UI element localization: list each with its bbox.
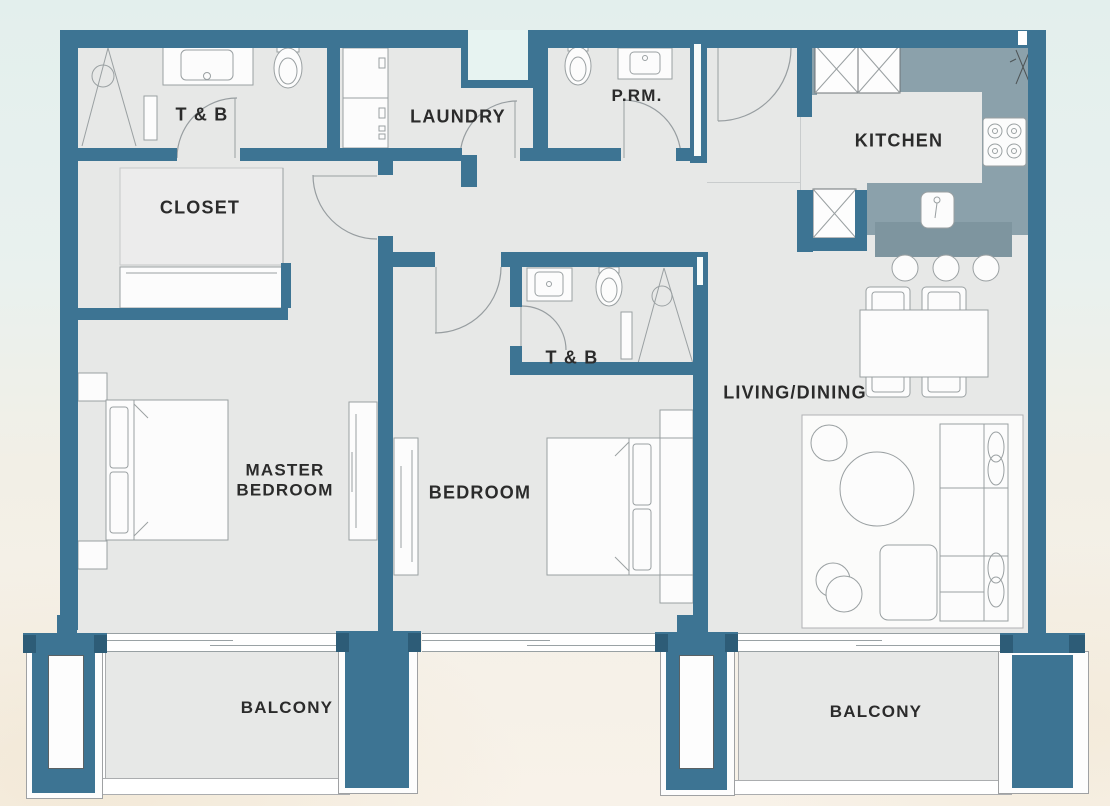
room-label-balcony-left: BALCONY (241, 698, 333, 718)
wall (533, 30, 548, 161)
wall (60, 30, 466, 48)
floor-plan: T & B LAUNDRY P.RM. KITCHEN CLOSET T & B… (0, 0, 1110, 806)
bath2-toilet (596, 267, 622, 306)
coffee-table (840, 452, 914, 526)
slider-panel-line (738, 640, 882, 641)
room-label-laundry: LAUNDRY (410, 107, 506, 128)
kitchen-sink (921, 192, 954, 228)
kitchen-cabinet-x-box (815, 45, 858, 93)
dining-set (860, 287, 988, 397)
bar-stools (892, 255, 999, 281)
slider-panel-line (527, 645, 655, 646)
wall (693, 252, 708, 635)
wall (281, 263, 291, 308)
door-bedroom (435, 267, 501, 333)
living-balcony-door (738, 633, 1000, 652)
room-label-closet: CLOSET (160, 198, 240, 219)
column-notch (336, 633, 349, 652)
wall-shaft (697, 257, 703, 285)
wall (797, 30, 812, 117)
wall (60, 30, 78, 630)
wall (855, 190, 867, 238)
bedroom-window (422, 633, 655, 652)
wall (501, 252, 708, 267)
door-entry (718, 48, 791, 121)
wall (378, 148, 393, 175)
room-label-kitchen: KITCHEN (855, 131, 943, 152)
room-label-powder-room: P.RM. (611, 86, 662, 106)
wall (461, 80, 535, 88)
column-notch (725, 634, 738, 652)
side-table (811, 425, 847, 461)
bedroom-bed (547, 438, 660, 575)
wall (510, 362, 708, 375)
master-bath-vanity-sink (163, 45, 253, 85)
master-bath-toilet (274, 45, 302, 88)
stove-cooktop (983, 118, 1026, 166)
door-bath2 (521, 306, 566, 350)
bath2-sink (527, 268, 572, 301)
wall (378, 267, 393, 635)
slider-panel-line (105, 640, 233, 641)
master-bath-shower (82, 48, 136, 146)
lounge-chair (880, 545, 937, 620)
kitchen-cabinet-x-box (813, 189, 856, 238)
nightstand (78, 373, 107, 401)
ac-ledge (679, 655, 714, 769)
room-label-living-dining: LIVING/DINING (723, 383, 867, 404)
column-notch (408, 633, 421, 652)
shower-glass-panel (144, 96, 157, 140)
wall-shaft (694, 44, 701, 156)
column-notch (1000, 635, 1013, 653)
ac-ledge (48, 655, 84, 769)
wall (797, 238, 867, 251)
wall (60, 148, 177, 161)
furniture-layer (0, 0, 1110, 806)
wall (60, 308, 288, 320)
wall (378, 252, 435, 267)
column-notch (655, 634, 668, 652)
wall (1028, 30, 1046, 642)
nightstand (78, 541, 107, 569)
master-balcony-door (105, 633, 338, 652)
column-notch (1069, 635, 1085, 653)
wall (327, 42, 340, 153)
column-notch (23, 635, 36, 653)
door-powder-room (623, 100, 681, 158)
wall (510, 267, 522, 307)
door-closet (313, 175, 377, 239)
column (345, 652, 409, 788)
master-bed (106, 400, 228, 540)
bath2-glass-panel (621, 312, 632, 359)
wall (461, 155, 477, 187)
room-label-master-bath: T & B (176, 105, 229, 126)
powder-room-toilet (565, 45, 591, 85)
room-label-balcony-right: BALCONY (830, 702, 922, 722)
washer-dryer-stack (343, 48, 388, 148)
slider-panel-line (856, 645, 1000, 646)
wall (528, 30, 1046, 48)
slider-panel-line (422, 640, 550, 641)
room-label-master-bedroom: MASTER BEDROOM (212, 461, 358, 502)
column (1012, 655, 1073, 788)
closet-wardrobe (120, 168, 283, 308)
column-notch (94, 635, 107, 653)
sofa (940, 424, 1008, 621)
bedroom-wardrobe (394, 438, 418, 575)
wall-niche (1018, 31, 1027, 45)
wall (461, 30, 468, 87)
bedroom-headboard-unit (660, 410, 693, 603)
bath2-shower (637, 268, 694, 367)
slider-panel-line (210, 645, 338, 646)
room-label-bath2: T & B (546, 348, 599, 369)
room-label-bedroom: BEDROOM (429, 483, 531, 504)
wall (240, 148, 462, 161)
kitchen-cabinet-x-box (858, 45, 900, 93)
powder-room-sink (618, 48, 672, 79)
